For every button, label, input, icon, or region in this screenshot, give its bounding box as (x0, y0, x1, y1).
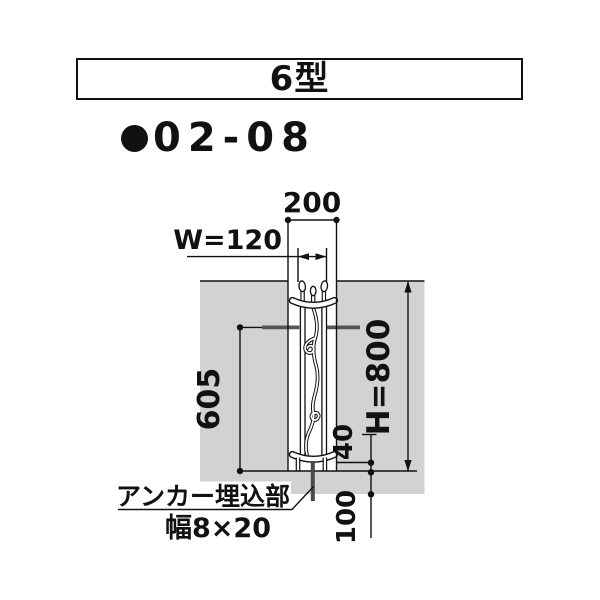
anchor-note-line2: 幅8×20 (165, 513, 271, 544)
anchor-note-line1: アンカー埋込部 (116, 482, 290, 511)
dim-605-label: 605 (192, 368, 227, 431)
dim-200-label: 200 (283, 186, 341, 219)
dim-w120-label: W=120 (173, 225, 282, 256)
dim-h800-label: H=800 (361, 319, 397, 436)
anchor-leader-note: アンカー埋込部 幅8×20 (116, 482, 314, 544)
dim-40-label: 40 (329, 424, 359, 460)
dimension-w120: W=120 (173, 225, 326, 282)
dimension-200: 200 (283, 186, 341, 223)
dim-100-label: 100 (332, 490, 362, 544)
technical-drawing: 200 W=120 605 H=800 40 100 アンカー埋込部 (0, 0, 600, 600)
